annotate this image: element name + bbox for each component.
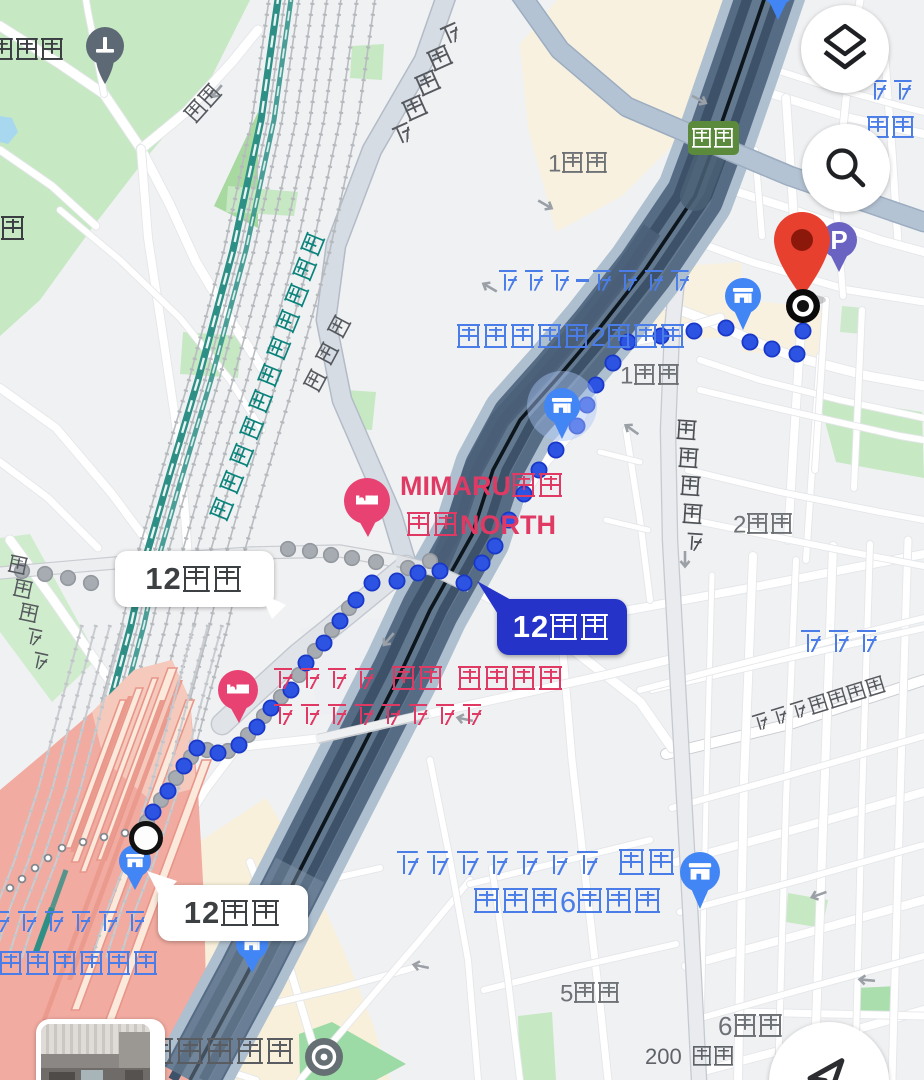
svg-text:P: P	[830, 225, 847, 255]
